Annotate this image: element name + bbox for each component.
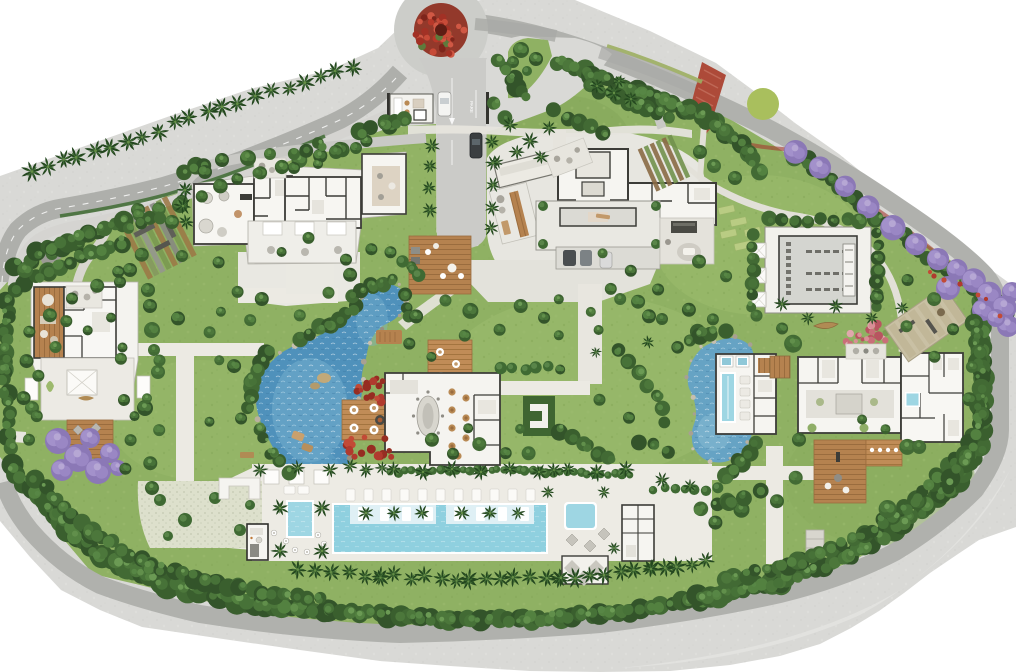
svg-text:PARE: PARE xyxy=(469,101,474,113)
